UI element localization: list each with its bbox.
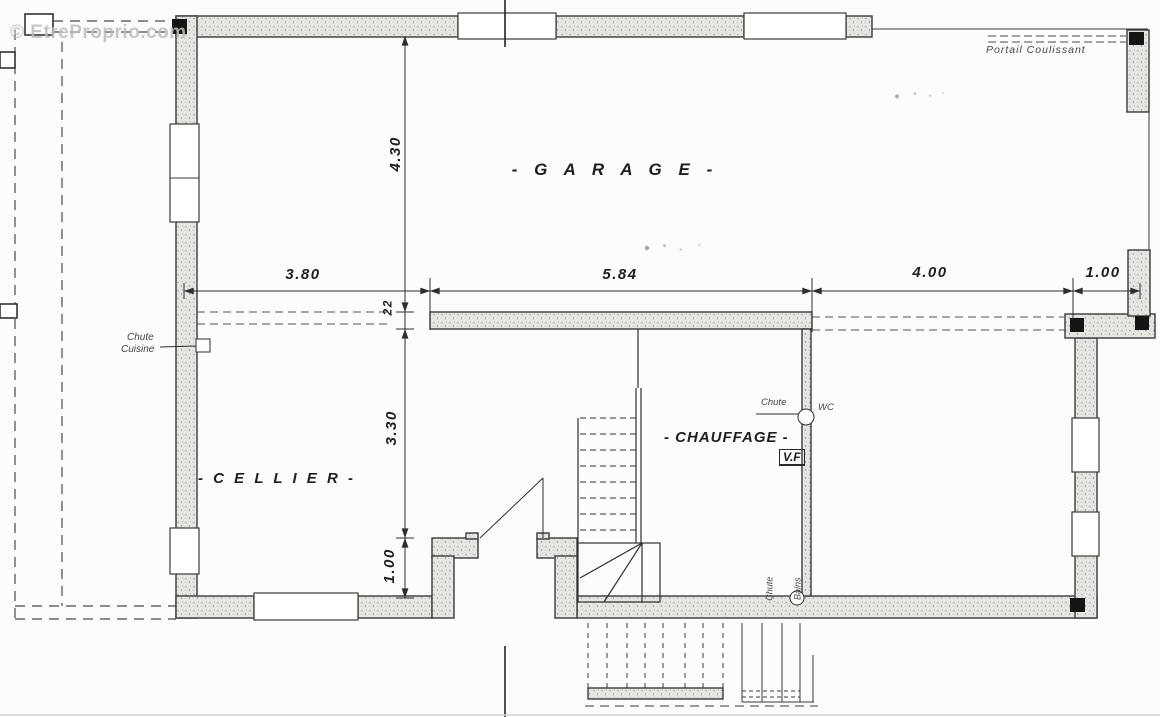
floor-plan: © EtreProprio.com - G A R A G E - - C E … — [0, 0, 1160, 717]
dimension-4-00: 4.00 — [895, 265, 965, 281]
pencil-smudge — [640, 240, 710, 256]
staircase — [578, 329, 660, 602]
dimension-4-30: 4.30 — [388, 130, 404, 178]
chute-bains-label-line2: Bains — [793, 569, 802, 609]
terrace-dashed-outline — [15, 21, 176, 621]
door-swing — [480, 478, 543, 538]
watermark: © EtreProprio.com — [10, 22, 187, 44]
sliding-gate-dashed — [988, 36, 1126, 42]
room-label-chauffage: - CHAUFFAGE - — [664, 430, 789, 446]
chute-bains-label: Chute Bains — [746, 569, 822, 609]
chute-bains-label-line1: Chute — [765, 569, 774, 609]
gate-track-lines — [872, 29, 1149, 250]
floor-plan-drawing — [0, 0, 1160, 717]
terrace-posts — [0, 14, 53, 318]
dimension-1-00-horizontal: 1.00 — [1074, 265, 1132, 281]
chute-cuisine-label-line2: Cuisine — [121, 345, 154, 356]
dimension-3-30: 3.30 — [384, 404, 400, 452]
chute-cuisine-label-line1: Chute — [127, 333, 154, 344]
room-label-cellier: - C E L L I E R - — [198, 471, 356, 487]
sliding-gate-label: Portail Coulissant — [986, 45, 1086, 56]
room-label-garage: - G A R A G E - — [455, 161, 775, 179]
dimension-22: 22 — [382, 289, 395, 325]
chute-wc-label: Chute — [761, 398, 786, 408]
dimension-5-84: 5.84 — [585, 267, 655, 283]
vf-vent-label: V.F — [779, 449, 805, 466]
pencil-smudge — [888, 88, 948, 102]
dimension-1-00-vertical: 1.00 — [382, 542, 398, 590]
wc-label: WC — [818, 403, 834, 413]
dimension-3-80: 3.80 — [268, 267, 338, 283]
